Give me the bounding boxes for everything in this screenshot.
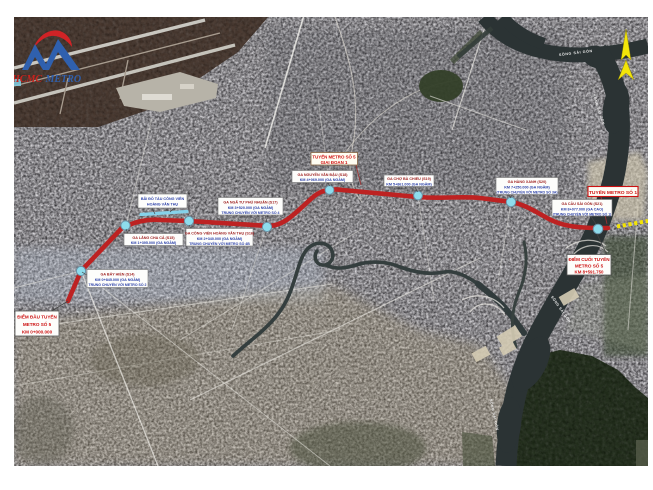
svg-text:GA NGÃ TƯ PHÚ NHUẬN (S17): GA NGÃ TƯ PHÚ NHUẬN (S17) (223, 199, 278, 204)
svg-text:METRO: METRO (45, 74, 82, 85)
svg-text:GA NGUYỄN VĂN ĐẬU (S18): GA NGUYỄN VĂN ĐẬU (S18) (297, 172, 348, 177)
svg-text:GIAI ĐOẠN 1: GIAI ĐOẠN 1 (321, 160, 348, 165)
svg-text:TRUNG CHUYỂN VỚI METRO SỐ 4B: TRUNG CHUYỂN VỚI METRO SỐ 4B (189, 241, 250, 246)
svg-text:KM 0+000.000: KM 0+000.000 (22, 330, 53, 335)
svg-text:GA CHỢ BÀ CHIỂU (S19): GA CHỢ BÀ CHIỂU (S19) (387, 176, 432, 181)
svg-text:GA HÀNG XANH (S20): GA HÀNG XANH (S20) (508, 179, 548, 184)
svg-text:TRUNG CHUYỂN VỚI METRO SỐ 2: TRUNG CHUYỂN VỚI METRO SỐ 2 (88, 282, 146, 287)
svg-text:METRO SỐ 5: METRO SỐ 5 (23, 321, 52, 327)
svg-text:KM 0+845.000 (GA NGẦM): KM 0+845.000 (GA NGẦM) (95, 278, 141, 282)
svg-text:HCMC: HCMC (11, 74, 42, 85)
svg-text:METRO SỐ 5: METRO SỐ 5 (575, 263, 604, 269)
svg-text:ĐIỂM ĐẦU TUYẾN: ĐIỂM ĐẦU TUYẾN (17, 314, 57, 320)
svg-text:(TRUNG CHUYỂN VỚI METRO SỐ 3A): (TRUNG CHUYỂN VỚI METRO SỐ 3A) (497, 190, 558, 195)
svg-text:KM 4+069.000 (GA NGẦM): KM 4+069.000 (GA NGẦM) (300, 178, 346, 182)
svg-text:KM 5+861.000 (GA NGẦM): KM 5+861.000 (GA NGẦM) (386, 183, 432, 187)
svg-text:GA CÔNG VIÊN HOÀNG VĂN THỤ (S1: GA CÔNG VIÊN HOÀNG VĂN THỤ (S16) (185, 230, 255, 235)
svg-text:KM 8+591.750: KM 8+591.750 (575, 270, 604, 275)
svg-text:KM 7+250.000 (GA NGẦM): KM 7+250.000 (GA NGẦM) (504, 185, 550, 189)
svg-text:(TRUNG CHUYỂN VỚI METRO SỐ 1): (TRUNG CHUYỂN VỚI METRO SỐ 1) (553, 212, 611, 217)
svg-text:KM 3+520.000 (GA NGẦM): KM 3+520.000 (GA NGẦM) (228, 206, 274, 210)
svg-text:TUYẾN METRO SỐ 1: TUYẾN METRO SỐ 1 (589, 189, 637, 196)
svg-text:TRUNG CHUYỂN VỚI METRO SỐ 4: TRUNG CHUYỂN VỚI METRO SỐ 4 (221, 210, 279, 215)
svg-text:TUYẾN METRO SỐ 5: TUYẾN METRO SỐ 5 (312, 154, 356, 159)
svg-text:GA BẢY HIỀN (S14): GA BẢY HIỀN (S14) (100, 272, 135, 277)
svg-text:HOÀNG VĂN THỤ: HOÀNG VĂN THỤ (147, 202, 178, 207)
svg-text:GA LĂNG CHA CẢ (S15): GA LĂNG CHA CẢ (S15) (132, 235, 175, 240)
svg-text:KM 1+395.000 (GA NGẦM): KM 1+395.000 (GA NGẦM) (131, 241, 177, 245)
svg-text:KM 2+340.000 (GA NGẦM): KM 2+340.000 (GA NGẦM) (197, 237, 243, 241)
svg-text:BÃI ĐỖ TÀU CÔNG VIÊN: BÃI ĐỖ TÀU CÔNG VIÊN (141, 196, 185, 201)
svg-text:ĐIỂM CUỐI TUYẾN: ĐIỂM CUỐI TUYẾN (568, 256, 610, 262)
svg-text:GA CẦU SÀI GÒN (S21): GA CẦU SÀI GÒN (S21) (561, 201, 603, 206)
svg-text:KM 8+077.000 (GA CAO): KM 8+077.000 (GA CAO) (561, 207, 604, 211)
